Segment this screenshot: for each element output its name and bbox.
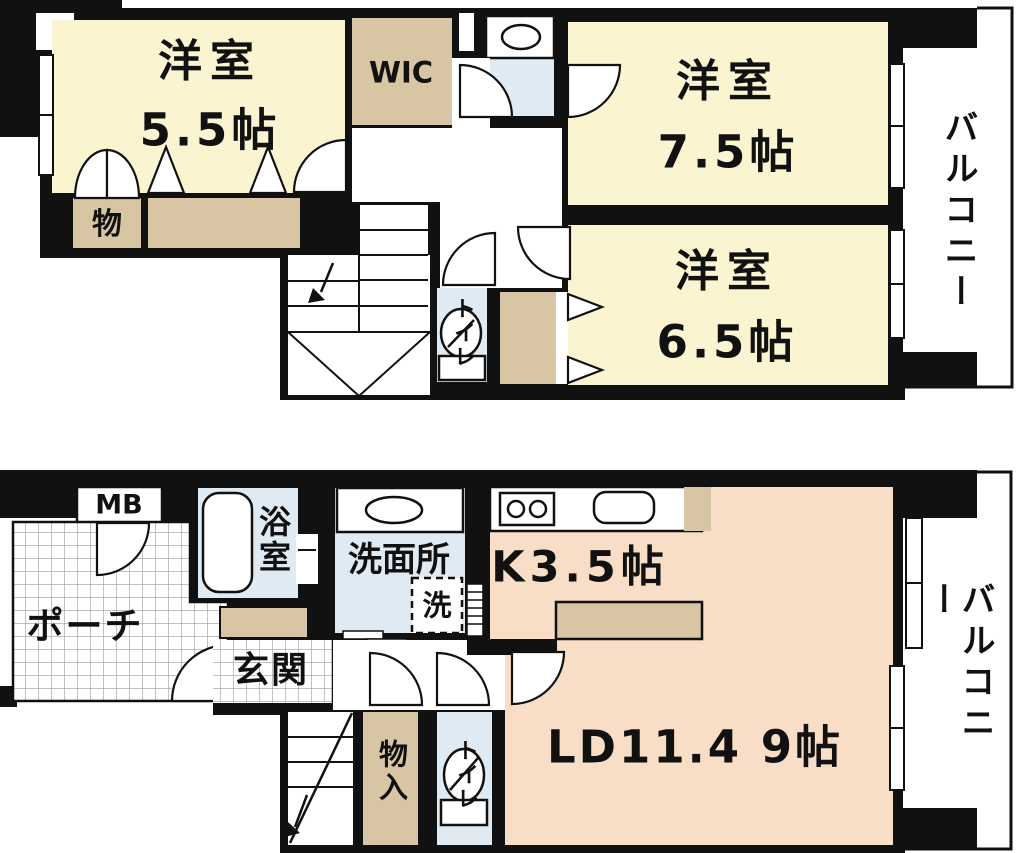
floor-plan: 洋室 5.5帖 WIC 物 洋室 7.5帖 洋室 6.5帖 バルコニー トイレ …: [0, 0, 1024, 853]
entrance-step: [220, 607, 308, 638]
room-7-5-label: 洋室: [676, 60, 780, 104]
sink-icon: [594, 492, 654, 523]
entrance-label: 玄関: [233, 653, 309, 689]
room-5-5-size: 5.5帖: [140, 108, 281, 153]
balcony-2f-label: バルコニー: [941, 110, 975, 315]
stove-icon: [500, 493, 554, 525]
stairs-1f: [285, 712, 353, 845]
floor1-plan: [0, 470, 1011, 853]
toilet-2f-label: トイレ: [451, 297, 473, 369]
room-6-5-size: 6.5帖: [657, 320, 798, 365]
washbasin-icon: [366, 497, 422, 523]
meter-box-label: MB: [95, 492, 142, 519]
kitchen-bar-counter: [556, 602, 702, 639]
room-5-5-label: 洋室: [158, 40, 262, 84]
kitchen-label: K3.5帖: [491, 547, 669, 590]
balcony-1f-label: バルコニー: [924, 582, 992, 763]
living-dining-label: LD11.4 9帖: [547, 725, 843, 770]
room-7-5-size: 7.5帖: [658, 130, 799, 175]
toilet-1f-label: トイレ: [454, 739, 476, 811]
closet-6-5: [500, 292, 558, 384]
storage-mono-label: 物: [92, 210, 122, 240]
bath-door: [296, 534, 318, 584]
hall-2f: [352, 128, 452, 202]
closet-5-5: [148, 198, 300, 248]
bathtub-icon: [203, 493, 252, 592]
washroom-label: 洗面所: [348, 543, 450, 577]
shaft: [458, 12, 475, 52]
sliding-door-icon: [343, 631, 383, 639]
room-6-5-label: 洋室: [675, 250, 779, 294]
floor2-plan: [0, 0, 1012, 400]
wic-label: WIC: [369, 59, 433, 88]
shelf-strip: [467, 584, 483, 636]
bath-label: 浴室: [257, 505, 289, 575]
washer-label: 洗: [422, 592, 451, 621]
closet-1f-label: 物入: [377, 739, 406, 805]
porch-label: ポーチ: [27, 608, 144, 645]
